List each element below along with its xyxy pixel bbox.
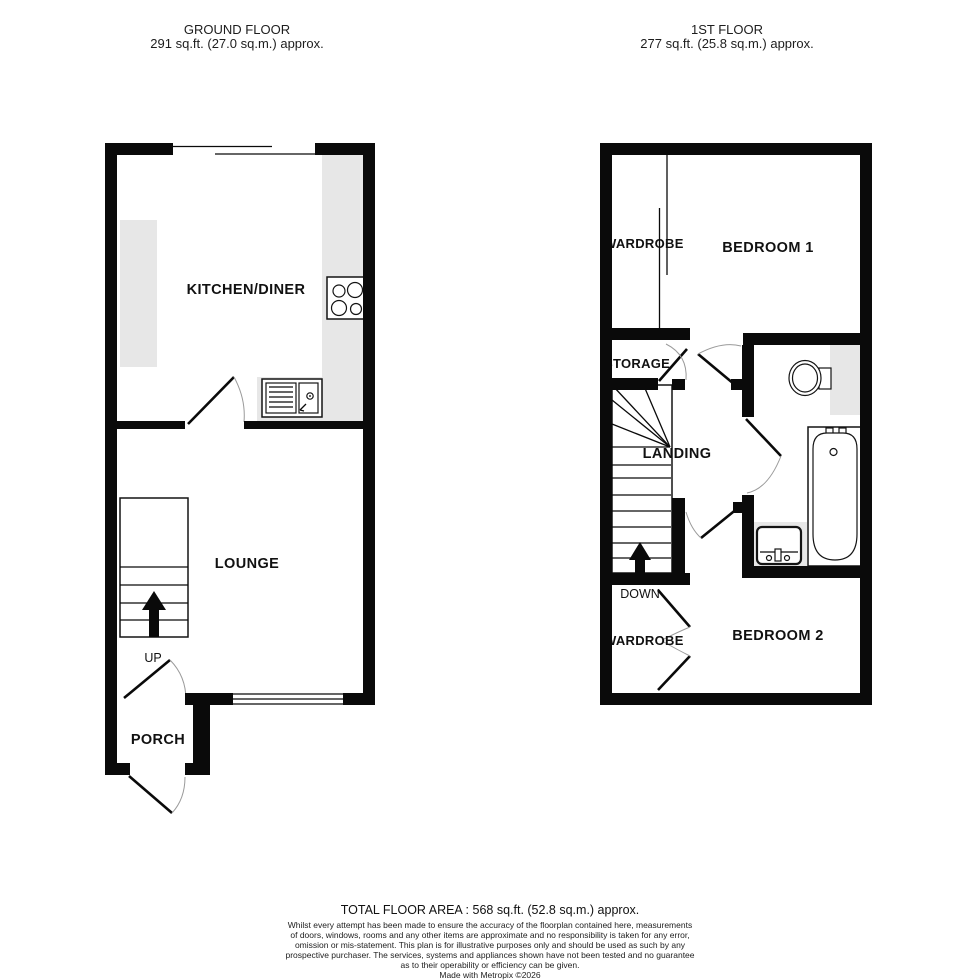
footer: TOTAL FLOOR AREA : 568 sq.ft. (52.8 sq.m… <box>0 903 980 980</box>
porch-label: PORCH <box>131 732 185 748</box>
disclaimer-line: Whilst every attempt has been made to en… <box>0 920 980 930</box>
wardrobe-bottom-label: WARDROBE <box>604 633 684 648</box>
porch-front-door <box>129 776 185 813</box>
disclaimer-line: as to their operability or efficiency ca… <box>0 960 980 970</box>
bedroom2-label: BEDROOM 2 <box>732 628 823 644</box>
bathroom-door <box>746 419 781 493</box>
first-floor-plan: WARDROBE BEDROOM 1 STORAGE LANDING DOWN … <box>600 143 872 705</box>
floorplan-canvas: KITCHEN/DINER LOUNGE UP PORCH <box>0 0 980 968</box>
kitchen-counter-left <box>120 220 157 367</box>
disclaimer-line: omission or mis-statement. This plan is … <box>0 940 980 950</box>
disclaimer: Whilst every attempt has been made to en… <box>0 920 980 980</box>
bedroom1-door <box>698 345 741 384</box>
lounge-window <box>233 693 343 705</box>
toilet-icon <box>789 361 831 396</box>
kitchen-door <box>188 377 244 424</box>
lounge-label: LOUNGE <box>215 556 279 572</box>
bedroom1-label: BEDROOM 1 <box>722 240 813 256</box>
disclaimer-line: prospective purchaser. The services, sys… <box>0 950 980 960</box>
bedroom2-door <box>686 508 738 538</box>
sink-icon <box>262 379 322 417</box>
bathtub-icon <box>808 427 862 566</box>
up-label: UP <box>144 651 161 665</box>
total-floor-area: TOTAL FLOOR AREA : 568 sq.ft. (52.8 sq.m… <box>0 903 980 917</box>
metropix-credit: Made with Metropix ©2026 <box>0 970 980 980</box>
down-label: DOWN <box>620 587 660 601</box>
staircase-down <box>612 385 672 573</box>
basin-icon <box>757 527 801 564</box>
storage-label: STORAGE <box>604 356 670 371</box>
lounge-porch-door <box>124 660 186 700</box>
landing-label: LANDING <box>643 446 712 462</box>
wardrobe-top-label: WARDROBE <box>604 236 684 251</box>
bathroom-shelf <box>830 345 860 415</box>
staircase-up <box>120 498 188 637</box>
kitchen-label: KITCHEN/DINER <box>187 282 306 298</box>
ground-floor-plan: KITCHEN/DINER LOUNGE UP PORCH <box>105 143 375 813</box>
disclaimer-line: of doors, windows, rooms and any other i… <box>0 930 980 940</box>
